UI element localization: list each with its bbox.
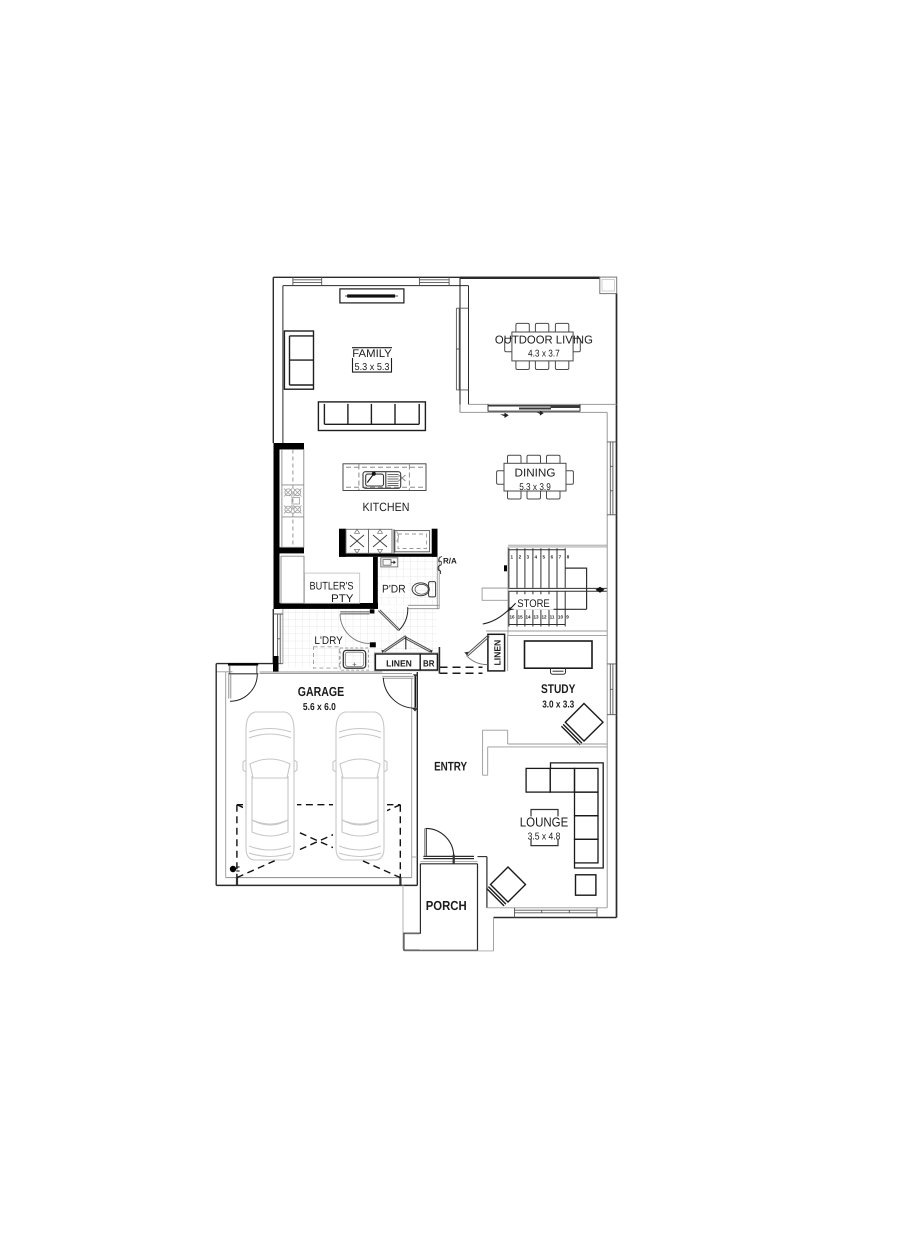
- svg-text:8: 8: [567, 555, 570, 560]
- svg-text:PTY: PTY: [331, 593, 354, 605]
- svg-text:3: 3: [527, 555, 530, 560]
- svg-text:11: 11: [550, 615, 555, 620]
- svg-text:3.5 x 4.8: 3.5 x 4.8: [528, 832, 561, 843]
- svg-text:PORCH: PORCH: [426, 898, 467, 913]
- svg-text:3.0 x 3.3: 3.0 x 3.3: [542, 699, 574, 710]
- svg-text:5.3 x 5.3: 5.3 x 5.3: [355, 362, 390, 373]
- svg-text:L'DRY: L'DRY: [314, 635, 343, 647]
- svg-text:1: 1: [511, 555, 514, 560]
- svg-text:4: 4: [535, 555, 538, 560]
- svg-text:OUTDOOR LIVING: OUTDOOR LIVING: [495, 334, 593, 346]
- svg-text:10: 10: [558, 615, 564, 620]
- svg-text:GARAGE: GARAGE: [298, 684, 345, 699]
- svg-text:P'DR: P'DR: [382, 583, 406, 595]
- svg-text:DINING: DINING: [515, 467, 556, 479]
- svg-text:6: 6: [551, 555, 554, 560]
- svg-text:STORE: STORE: [517, 598, 550, 610]
- svg-text:R/A: R/A: [443, 557, 457, 566]
- svg-text:STUDY: STUDY: [541, 682, 576, 696]
- svg-text:15: 15: [518, 615, 524, 620]
- svg-text:4.3 x 3.7: 4.3 x 3.7: [528, 348, 560, 359]
- svg-text:FAMILY: FAMILY: [352, 348, 392, 360]
- svg-text:5.6 x 6.0: 5.6 x 6.0: [303, 702, 336, 713]
- svg-text:LINEN: LINEN: [386, 659, 412, 669]
- svg-text:5.3 x 3.9: 5.3 x 3.9: [519, 482, 551, 493]
- svg-text:16: 16: [510, 615, 516, 620]
- svg-text:13: 13: [534, 615, 540, 620]
- svg-text:9: 9: [566, 615, 569, 620]
- svg-text:BUTLER'S: BUTLER'S: [310, 581, 354, 593]
- svg-text:LINEN: LINEN: [492, 640, 502, 666]
- svg-text:14: 14: [526, 615, 532, 620]
- svg-text:BR: BR: [423, 659, 435, 669]
- svg-text:12: 12: [542, 615, 548, 620]
- svg-text:5: 5: [543, 555, 546, 560]
- svg-text:7: 7: [559, 555, 562, 560]
- svg-text:2: 2: [519, 555, 522, 560]
- svg-text:KITCHEN: KITCHEN: [363, 500, 410, 514]
- svg-text:ENTRY: ENTRY: [434, 760, 468, 774]
- svg-text:LOUNGE: LOUNGE: [520, 815, 569, 830]
